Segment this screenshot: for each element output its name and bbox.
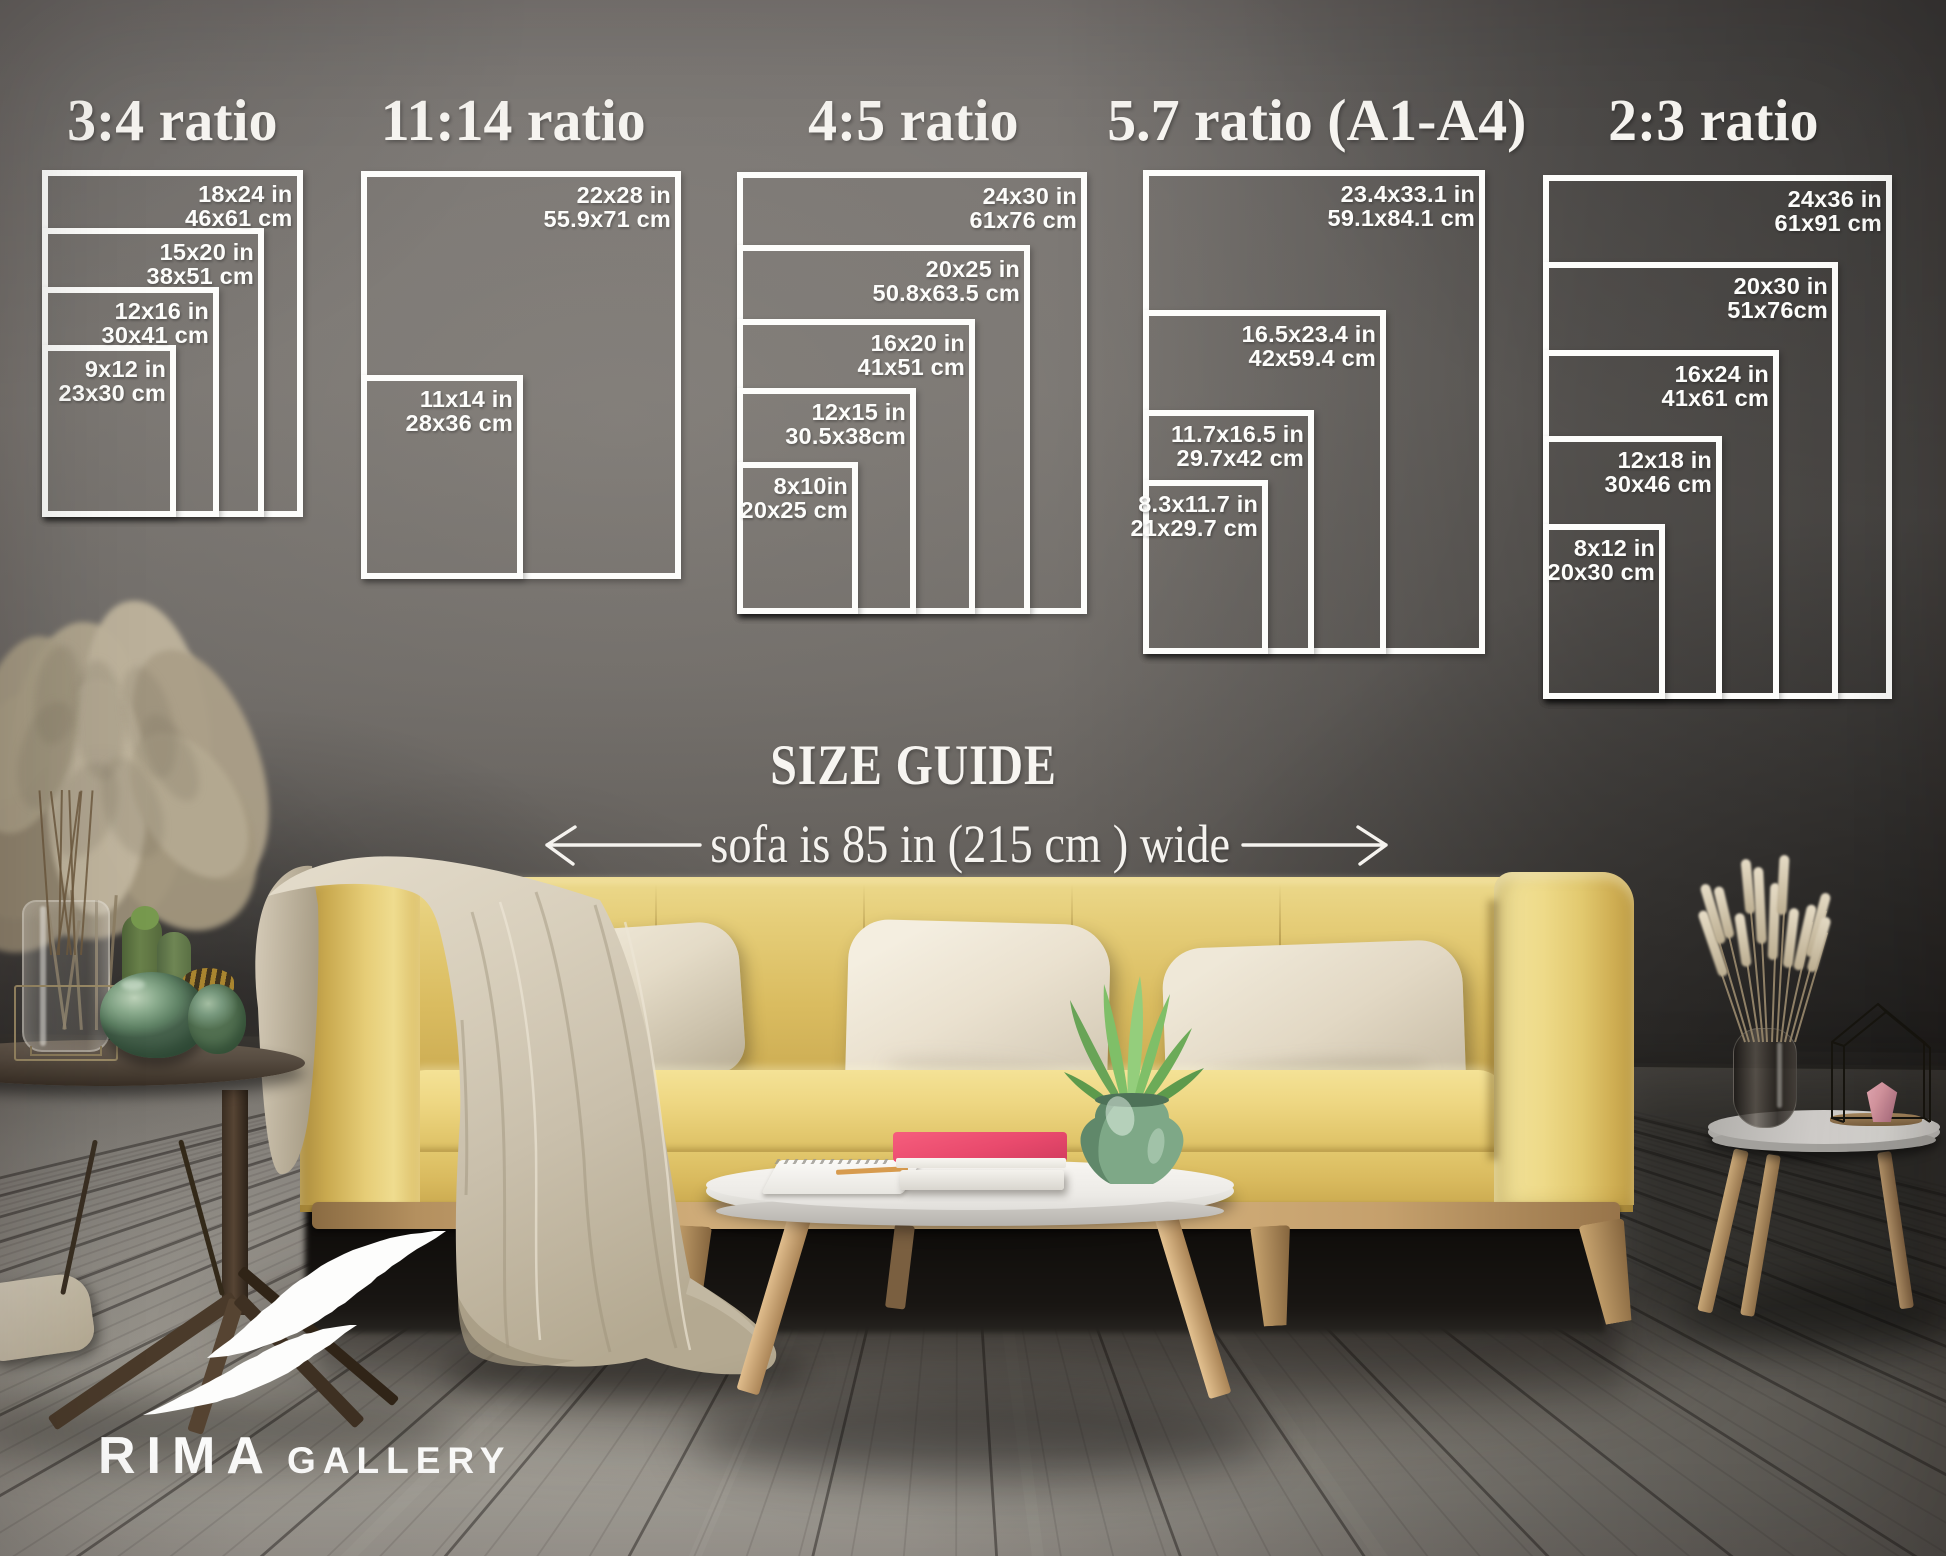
svg-text:RIMA: RIMA: [98, 1427, 275, 1485]
svg-text:GALLERY: GALLERY: [287, 1440, 511, 1481]
